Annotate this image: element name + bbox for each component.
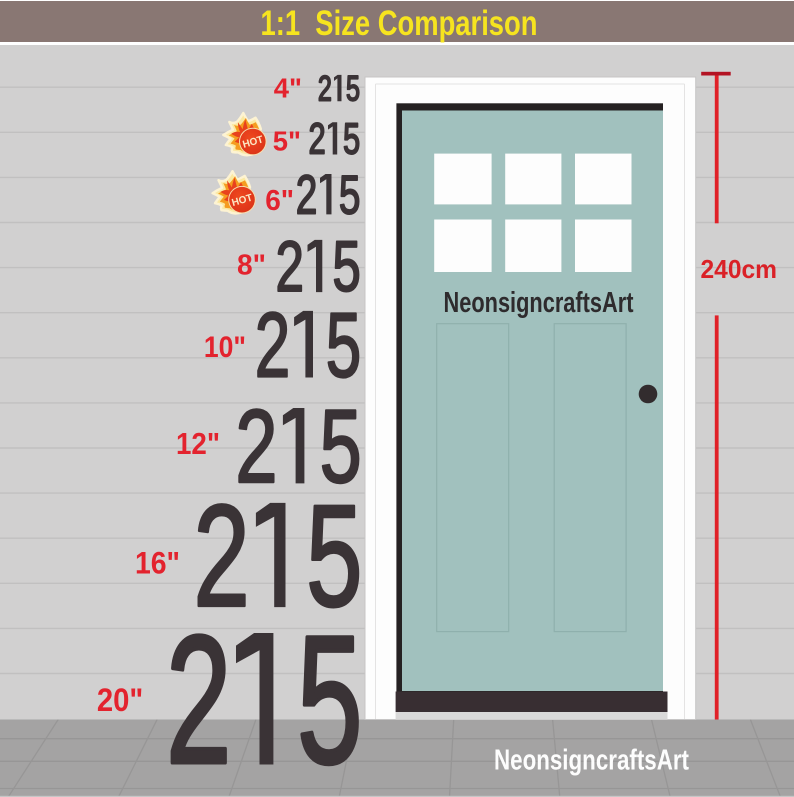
svg-text:2: 2 — [296, 164, 318, 226]
svg-text:5: 5 — [339, 164, 361, 226]
svg-text:NeonsigncraftsArt: NeonsigncraftsArt — [444, 287, 634, 319]
svg-text:5: 5 — [346, 69, 360, 108]
svg-text:6": 6" — [265, 185, 294, 217]
svg-text:2: 2 — [166, 598, 232, 797]
svg-text:10": 10" — [204, 331, 246, 364]
svg-text:5: 5 — [326, 294, 362, 396]
svg-text:5: 5 — [343, 116, 360, 164]
svg-text:20": 20" — [97, 681, 143, 718]
svg-text:4": 4" — [274, 73, 302, 104]
svg-text:12": 12" — [176, 426, 220, 461]
svg-text:NeonsigncraftsArt: NeonsigncraftsArt — [494, 744, 689, 776]
svg-text:2: 2 — [255, 294, 291, 396]
svg-text:240cm: 240cm — [701, 254, 778, 284]
svg-text:2: 2 — [318, 69, 332, 108]
svg-text:16": 16" — [135, 545, 180, 581]
svg-text:1:1 Size Comparison: 1:1 Size Comparison — [261, 4, 538, 43]
svg-text:8": 8" — [237, 249, 266, 281]
svg-text:5: 5 — [297, 598, 363, 797]
svg-text:5": 5" — [273, 126, 301, 157]
svg-text:2: 2 — [309, 116, 326, 164]
